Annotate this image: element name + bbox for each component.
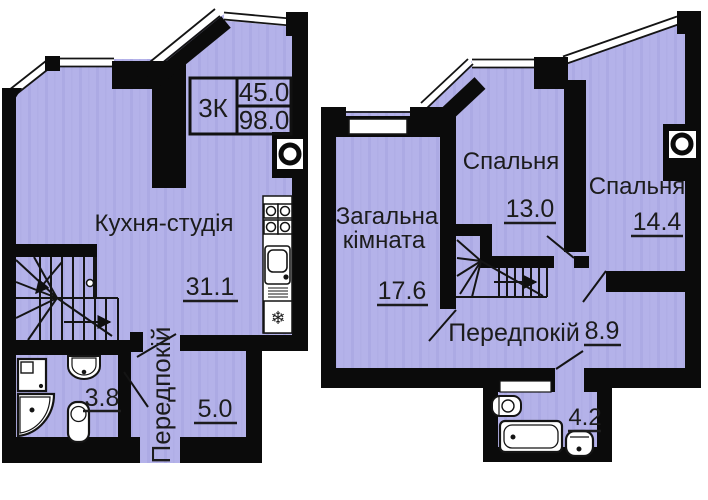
ventilation-icon: [277, 139, 303, 169]
bath2-sink-icon: [492, 396, 521, 416]
toilet2-icon: [566, 431, 593, 456]
room-label-living-1: Загальна: [336, 203, 439, 230]
area-value-living: 17.6: [378, 277, 427, 305]
room-label-bedroom1: Спальня: [463, 148, 559, 175]
fridge-snowflake: ❄: [270, 308, 285, 328]
washing-machine-icon: [18, 359, 46, 391]
ventilation-icon-2: [669, 131, 696, 158]
floor2-living-window: [349, 119, 407, 134]
room-label-bedroom2: Спальня: [589, 173, 685, 200]
bath-sink-icon: [68, 356, 100, 379]
room-label-hallway2: Передпокій: [448, 319, 580, 347]
floor2-bath-niche: [500, 381, 551, 392]
room-label-kitchen: Кухня-студія: [94, 210, 233, 237]
area-value-bedroom2: 14.4: [633, 208, 682, 236]
area-value-kitchen: 31.1: [186, 273, 235, 301]
room-label-living-2: кімната: [343, 227, 426, 254]
apartment-type: 3К: [198, 93, 228, 123]
apartment-area-upper: 45.0: [239, 77, 290, 107]
area-value-hallway2: 8.9: [585, 317, 620, 345]
room-label-hallway1: Передпокій: [146, 327, 176, 464]
area-value-storage: 5.0: [198, 395, 233, 423]
area-value-bedroom1: 13.0: [506, 195, 555, 223]
duplex-floor-plan: ❄: [0, 0, 708, 500]
apartment-area-total: 98.0: [239, 105, 290, 135]
bathtub-icon: [500, 421, 562, 452]
area-value-bathroom2: 4.2: [568, 404, 601, 431]
floor2-plan: Загальна кімната 17.6 Спальня 13.0 Спаль…: [321, 11, 701, 462]
floor1-plan: ❄: [2, 9, 308, 463]
area-value-bathroom1: 3.8: [85, 384, 120, 412]
floor-plan-page: ❄: [0, 0, 708, 500]
